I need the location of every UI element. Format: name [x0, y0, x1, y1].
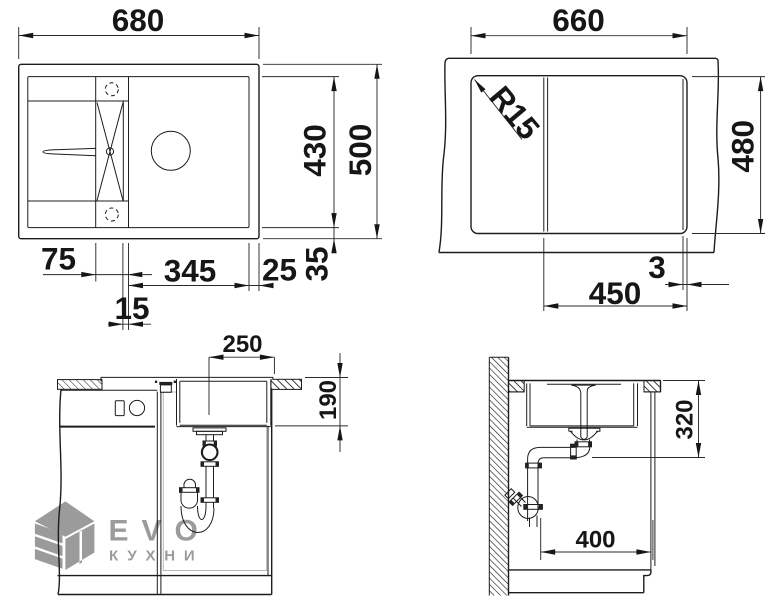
- svg-text:660: 660: [552, 2, 605, 38]
- svg-text:EVO: EVO: [109, 515, 211, 548]
- svg-text:450: 450: [589, 275, 642, 311]
- svg-text:КУХНИ: КУХНИ: [109, 548, 203, 565]
- svg-text:15: 15: [114, 290, 149, 326]
- svg-text:190: 190: [315, 380, 342, 420]
- svg-text:25: 25: [262, 252, 297, 288]
- svg-text:320: 320: [672, 399, 699, 439]
- svg-text:75: 75: [41, 241, 76, 277]
- svg-text:680: 680: [112, 2, 165, 38]
- svg-text:400: 400: [575, 527, 615, 554]
- svg-text:480: 480: [725, 120, 761, 173]
- svg-text:35: 35: [299, 246, 335, 281]
- svg-text:345: 345: [164, 253, 217, 289]
- svg-text:250: 250: [222, 331, 262, 358]
- svg-text:430: 430: [297, 124, 333, 177]
- svg-text:500: 500: [342, 124, 378, 177]
- svg-text:3: 3: [648, 249, 666, 285]
